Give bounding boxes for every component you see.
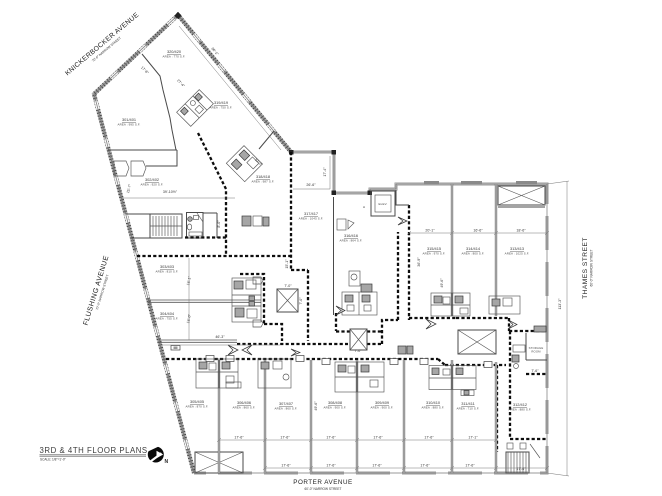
svg-text:39'-10½": 39'-10½" [163, 190, 178, 194]
svg-text:17'-6": 17'-6" [281, 464, 291, 468]
svg-text:AREA : 900 S.F.: AREA : 900 S.F. [371, 406, 394, 410]
svg-text:PORTER AVENUE: PORTER AVENUE [293, 479, 352, 486]
svg-text:17'-6": 17'-6" [326, 436, 336, 440]
svg-text:18'-6": 18'-6" [516, 229, 526, 233]
svg-text:318/418: 318/418 [256, 174, 270, 179]
svg-text:AREA : 860 S.F.: AREA : 860 S.F. [275, 407, 298, 411]
svg-text:AREA : 870 S.F.: AREA : 870 S.F. [186, 405, 209, 409]
svg-text:7'-0": 7'-0" [354, 349, 362, 353]
svg-text:113'-3": 113'-3" [558, 298, 562, 310]
svg-text:17'-6": 17'-6" [280, 436, 290, 440]
svg-text:305/405: 305/405 [190, 399, 204, 404]
svg-text:302/402: 302/402 [145, 177, 159, 182]
svg-text:314/414: 314/414 [466, 246, 481, 251]
svg-text:AREA : 920 S.F.: AREA : 920 S.F. [141, 183, 164, 187]
svg-text:301/401: 301/401 [122, 117, 136, 122]
svg-text:ROOM: ROOM [531, 350, 541, 354]
svg-text:320/420: 320/420 [167, 49, 182, 54]
svg-text:16'-6": 16'-6" [473, 229, 483, 233]
svg-text:319/419: 319/419 [214, 100, 228, 105]
svg-text:AREA : 900 S.F.: AREA : 900 S.F. [324, 406, 347, 410]
svg-text:307/407: 307/407 [279, 401, 293, 406]
svg-text:309/409: 309/409 [375, 400, 389, 405]
svg-text:308/408: 308/408 [328, 400, 342, 405]
svg-text:AREA : 1045 S.F.: AREA : 1045 S.F. [299, 217, 324, 221]
svg-text:AREA : 710 S.F.: AREA : 710 S.F. [457, 407, 480, 411]
svg-text:49'-6": 49'-6" [440, 278, 444, 288]
svg-text:17'-6": 17'-6" [326, 464, 336, 468]
svg-text:AREA : 770 S.F.: AREA : 770 S.F. [163, 55, 186, 59]
svg-text:THAMES STREET: THAMES STREET [582, 237, 589, 299]
svg-text:17'-6": 17'-6" [465, 464, 475, 468]
svg-text:15'-1": 15'-1" [285, 259, 289, 269]
svg-text:17'-1": 17'-1" [468, 436, 478, 440]
svg-text:7'-0": 7'-0" [299, 297, 303, 305]
svg-text:17'-4": 17'-4" [323, 167, 327, 177]
svg-text:316/416: 316/416 [344, 233, 358, 238]
svg-text:20'-1": 20'-1" [425, 229, 435, 233]
svg-text:26'-6": 26'-6" [306, 183, 316, 187]
svg-text:303/403: 303/403 [160, 264, 174, 269]
svg-text:46'-3": 46'-3" [215, 335, 225, 339]
svg-text:306/406: 306/406 [237, 400, 251, 405]
svg-text:7'-6": 7'-6" [531, 369, 539, 373]
svg-text:3RD & 4TH FLOOR PLANS: 3RD & 4TH FLOOR PLANS [40, 446, 148, 455]
svg-text:49'-6": 49'-6" [314, 401, 318, 411]
svg-text:7'-0": 7'-0" [284, 284, 292, 288]
svg-text:ELEV.: ELEV. [379, 202, 388, 206]
svg-text:AREA : 995 S.F.: AREA : 995 S.F. [118, 123, 141, 127]
svg-text:36'-9": 36'-9" [417, 257, 421, 267]
svg-text:60'-0" NARROW STREET: 60'-0" NARROW STREET [590, 249, 594, 286]
svg-text:315/415: 315/415 [427, 246, 441, 251]
svg-text:AREA : 1025 S.F.: AREA : 1025 S.F. [505, 252, 530, 256]
svg-text:317/417: 317/417 [304, 211, 318, 216]
svg-text:AREA : 970 S.F.: AREA : 970 S.F. [423, 252, 446, 256]
svg-text:AREA : 755 S.F.: AREA : 755 S.F. [156, 317, 179, 321]
svg-text:312/412: 312/412 [513, 402, 527, 407]
svg-text:AREA : 750 S.F.: AREA : 750 S.F. [210, 106, 233, 110]
svg-text:AREA : 880 S.F.: AREA : 880 S.F. [422, 406, 445, 410]
svg-text:310/410: 310/410 [426, 400, 441, 405]
svg-text:AREA : 864 S.F.: AREA : 864 S.F. [340, 239, 363, 243]
svg-text:SCALE:: SCALE: [40, 458, 51, 462]
svg-text:AREA : 987 S.F.: AREA : 987 S.F. [252, 180, 275, 184]
svg-text:17'-6": 17'-6" [424, 436, 434, 440]
svg-text:17'-6": 17'-6" [516, 467, 526, 471]
svg-text:AREA : 860 S.F.: AREA : 860 S.F. [233, 406, 256, 410]
svg-text:17'-6": 17'-6" [234, 436, 244, 440]
svg-text:60'-0" NARROW STREET: 60'-0" NARROW STREET [305, 487, 342, 491]
svg-text:313/413: 313/413 [510, 246, 524, 251]
svg-text:17'-6": 17'-6" [372, 464, 382, 468]
svg-text:AREA : 810 S.F.: AREA : 810 S.F. [156, 270, 179, 274]
svg-text:AREA : 800 S.F.: AREA : 800 S.F. [462, 252, 485, 256]
svg-text:17'-6": 17'-6" [420, 464, 430, 468]
svg-text:N: N [165, 459, 169, 465]
svg-text:304/404: 304/404 [160, 311, 175, 316]
svg-text:H: H [363, 205, 365, 209]
svg-text:311/411: 311/411 [461, 401, 475, 406]
svg-text:17'-6": 17'-6" [373, 436, 383, 440]
svg-text:AREA : 880 S.F.: AREA : 880 S.F. [509, 408, 532, 412]
svg-text:8'-0": 8'-0" [217, 220, 221, 228]
svg-text:1/8"=1'-0": 1/8"=1'-0" [52, 458, 66, 462]
